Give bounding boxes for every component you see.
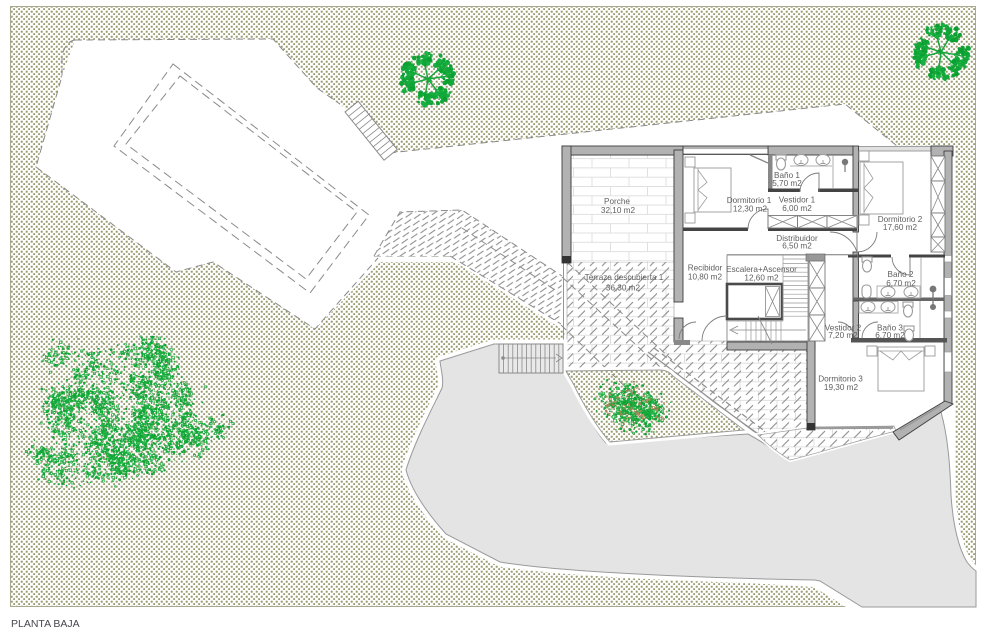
svg-text:Recibidor: Recibidor <box>688 264 723 273</box>
svg-text:12,60 m2: 12,60 m2 <box>744 274 779 283</box>
svg-text:17,60 m2: 17,60 m2 <box>883 223 918 232</box>
svg-text:12,30 m2: 12,30 m2 <box>733 205 768 214</box>
svg-text:PLANTA BAJA: PLANTA BAJA <box>11 618 80 630</box>
svg-text:Baño 2: Baño 2 <box>888 270 914 279</box>
svg-text:10,80 m2: 10,80 m2 <box>688 273 723 282</box>
svg-text:6,00 m2: 6,00 m2 <box>782 204 812 213</box>
svg-text:19,30 m2: 19,30 m2 <box>824 383 859 392</box>
svg-text:36,30 m2: 36,30 m2 <box>606 284 641 293</box>
svg-text:Terraza descubierta 1: Terraza descubierta 1 <box>585 273 664 282</box>
svg-text:7,20 m2: 7,20 m2 <box>828 331 858 340</box>
svg-text:32,10 m2: 32,10 m2 <box>601 206 636 215</box>
svg-text:6,70 m2: 6,70 m2 <box>886 279 916 288</box>
svg-text:6,50 m2: 6,50 m2 <box>782 242 812 251</box>
svg-text:Porche: Porche <box>604 197 630 206</box>
svg-text:6,70 m2: 6,70 m2 <box>875 331 905 340</box>
svg-text:5,70 m2: 5,70 m2 <box>772 179 802 188</box>
